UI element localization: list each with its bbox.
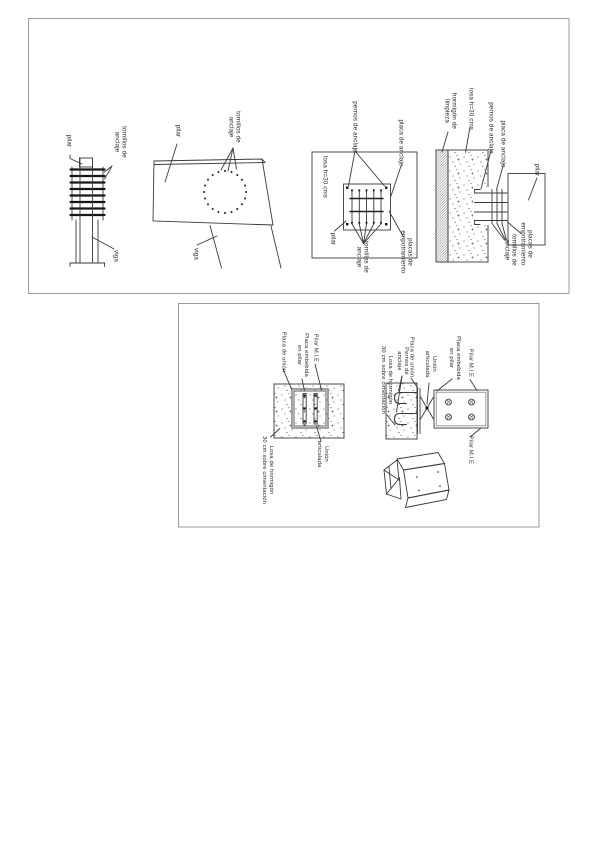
label-placa-union: Placa de unión: [280, 332, 287, 372]
leader-line: [466, 127, 471, 153]
leader-line: [221, 148, 233, 170]
leader-line: [165, 144, 177, 182]
label-placa-embebida: Placa embebida en pilar: [295, 333, 309, 377]
column-front-detail: [153, 144, 281, 268]
label-losa: losa h=30 cms: [321, 156, 328, 198]
column-elevation-detail: [70, 155, 114, 267]
label-losa: losa h=30 cms: [467, 88, 474, 130]
label-union-articulada: Unión articulada: [423, 351, 437, 378]
label-placas-empotramiento: placas de empotramiento: [399, 230, 414, 273]
label-pilar: pilar: [65, 135, 72, 147]
leader-line: [335, 221, 347, 231]
leader-line: [442, 132, 448, 152]
leader-line: [349, 151, 356, 186]
label-viga: viga: [112, 250, 119, 262]
leader-line: [470, 380, 477, 391]
label-tornillos-anclaje: tornillos de anclaje: [227, 111, 242, 143]
label-pilar: pilar: [329, 233, 336, 245]
leader-line: [355, 151, 385, 186]
leader-line: [529, 178, 538, 200]
leader-line: [92, 237, 114, 249]
lean-concrete-hatch: [436, 150, 448, 262]
slab-concrete: [274, 384, 344, 438]
label-pilar-mie: Pilar M.I.E: [467, 349, 474, 377]
label-placa-anclaje: placa de anclaje: [397, 119, 404, 166]
leader-line: [437, 379, 452, 391]
leader-line: [105, 166, 113, 179]
anchor-grid: [350, 189, 383, 223]
label-placa-anclaje: placa de anclaje: [499, 120, 506, 167]
leader-line: [497, 166, 504, 190]
label-pilar-mie: Pilar M.I.E: [467, 436, 474, 464]
label-viga: viga: [192, 248, 199, 260]
label-losa-hormigon: Losa de hormigón 30 cm sobre cimentación: [379, 346, 393, 414]
label-placas-empotramiento: placas de empotramiento: [519, 222, 534, 265]
flange-bolts: [446, 399, 475, 420]
label-pilar-mie: Pilar M.I.E: [312, 334, 319, 362]
label-union-articulada: Unión articulada: [315, 441, 329, 468]
label-losa-hormigon: Losa de hormigón 30 cm sobre cimentación: [260, 436, 274, 504]
label-tornillos-anclaje: tornillos de anclaje: [355, 241, 370, 273]
pinned-details-panel-frame: [179, 304, 540, 528]
label-tornillos-anclaje: tornillos de anclaje: [113, 126, 128, 158]
label-placa-union: Placa de unión: [408, 337, 415, 377]
drawing-sheet: pilar tornillos de anclaje viga pilar to…: [0, 0, 600, 848]
anchor-bolt-stack: [71, 170, 105, 216]
label-pernos-anclaje: pernos de anclaje: [351, 101, 358, 152]
label-pernos-anclaje: pernos de anclaje: [487, 102, 494, 153]
drawing-linework: [0, 0, 600, 848]
leader-line: [105, 166, 113, 172]
bracket-isometric-view: [384, 453, 449, 508]
label-pilar: pilar: [174, 125, 181, 137]
label-pilar: pilar: [533, 164, 540, 176]
label-placa-embebida: Placa embebida en pilar: [447, 336, 461, 380]
anchor-bolt-circle: [203, 170, 247, 214]
leader-line: [427, 383, 429, 404]
label-hormigon-limpieza: hormigón de limpieza: [443, 93, 458, 129]
leader-line: [233, 148, 237, 169]
label-tornillos-anclaje: tornillos de anclaje: [503, 234, 518, 266]
leader-line: [391, 166, 401, 196]
pin: [425, 406, 428, 409]
